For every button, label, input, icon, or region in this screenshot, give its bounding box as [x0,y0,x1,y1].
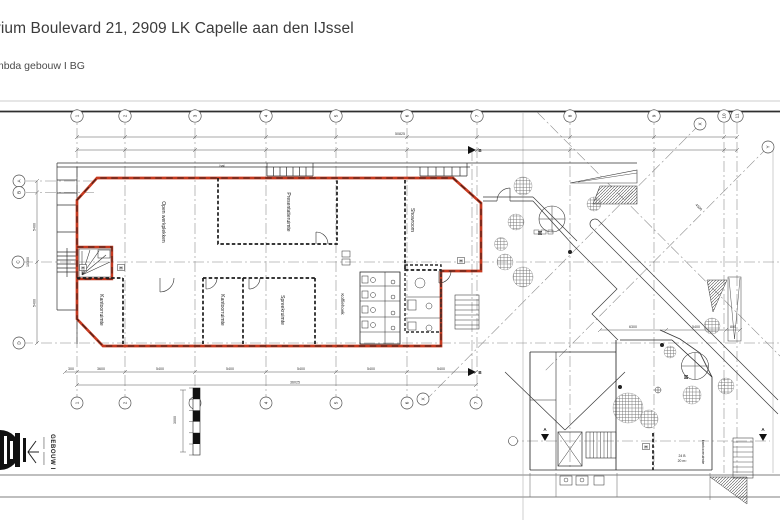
grid-bubble-label: 5 [334,401,339,404]
grid-bubble-label: 6 [405,401,410,404]
grid-bubble-label: 10 [722,113,727,119]
floor-plan-svg: 50825 36025 300 3600 5400 5400 5400 5400… [0,0,780,520]
grid-bubble-label: 4 [264,401,269,404]
stair-hatched-lower [710,477,747,504]
grid-bubble-label: 6 [405,114,410,117]
dim-left-sub: 5400 [33,299,37,307]
dim-top-total: 50825 [395,132,405,136]
dim-diagonal: 4500 [694,203,702,211]
dim-bottom-sub: 5400 [367,367,375,371]
grid-bubble-label: X [698,122,703,125]
room-label-koffiehoek: Koffiehoek [340,293,345,315]
hose-reel-marker: H [459,259,462,264]
unit-area-label: 20 m² [678,459,688,463]
title-block: GEBOUW I [0,430,55,470]
hose-reel-marker: H [119,266,122,271]
room-label-kantoorruimte-lower: kantoorruimte [701,440,706,465]
section-b-label: B [478,148,482,153]
stair-lower [586,432,616,458]
door-swings [160,188,510,292]
dim-right-sub: 6300 [629,325,637,329]
grid-bubble-label: 2 [123,401,128,404]
room-labels: Open werkplekken Presentatieruimte Showr… [98,164,706,465]
room-label-kantoorruimte: Kantoorruimte [98,294,104,326]
logo-chevron [28,441,39,463]
room-label-kantoorruimte: Kantoorruimte [219,294,225,326]
grid-bubble-label: 1 [75,401,80,404]
section-a-label: A [761,427,765,432]
sanitary-block [342,251,441,344]
room-label-presentatieruimte: Presentatieruimte [285,192,291,231]
grid-bubbles: 1 2 3 4 5 6 7 8 9 10 11 1 2 3 4 5 6 X 7 … [12,110,774,409]
entrance-marker: M [682,375,688,379]
sheet-frame [0,101,780,520]
entrance-marker: M [536,231,542,235]
dim-right-sub: 5400 [692,325,700,329]
title-block-building: GEBOUW I [49,434,55,470]
grid-bubble-label: 4 [264,114,269,117]
hose-reel-marker: H [81,266,84,271]
grid-bubble-label: 7 [474,401,479,404]
section-a-label: A [543,427,547,432]
grid-bubble-label: 3 [193,114,198,117]
grid-bubble-label: Y [766,145,771,148]
grid-bubble-label: 8 [568,114,573,117]
building-walls [57,163,637,344]
walkway-edge [590,219,778,414]
dim-bottom-total: 36025 [290,380,300,384]
dim-left-sub: 5400 [33,223,37,231]
dim-bottom-sub: 5400 [156,367,164,371]
grid-bubble-label: 11 [735,113,740,118]
dim-left-total: 10300 [26,257,30,267]
dim-bottom-sub: 5400 [226,367,234,371]
grid-bubble-label: 7 [475,114,480,117]
stairwell [79,249,111,277]
grid-bubble-label: X [421,397,426,400]
dim-bottom-sub: 300 [68,367,74,371]
scale-note: 3000 [173,416,177,424]
room-label-hal: hal [219,164,224,168]
dim-bottom-sub: 5400 [437,367,445,371]
room-label-spreekruimte: Spreekruimte [279,295,285,325]
grid-bubble-label: 5 [334,114,339,117]
grid-bubble-label: 2 [123,114,128,117]
floor-plan-page: vium Boulevard 21, 2909 LK Capelle aan d… [0,0,780,520]
grid-axes [22,109,780,473]
symbol-markers: H H H H M M [80,231,689,450]
grid-bubble-label: 1 [75,114,80,117]
neighbor-stair [455,295,479,329]
scale-bar [189,388,200,455]
unit-number-label: 24 B [679,454,687,458]
room-label-showroom: Showroom [409,208,415,232]
grid-bubble-label: B [17,191,22,194]
dim-right-sub: 800 [730,325,736,329]
hose-reel-marker: H [644,445,647,450]
room-label-open-werkplekken: Open werkplekken [160,201,166,243]
section-b-label: B [478,370,482,375]
dim-bottom-sub: 3600 [97,367,105,371]
entrance-area [483,170,778,504]
dim-bottom-sub: 5400 [297,367,305,371]
grid-bubble-label: 9 [652,114,657,117]
